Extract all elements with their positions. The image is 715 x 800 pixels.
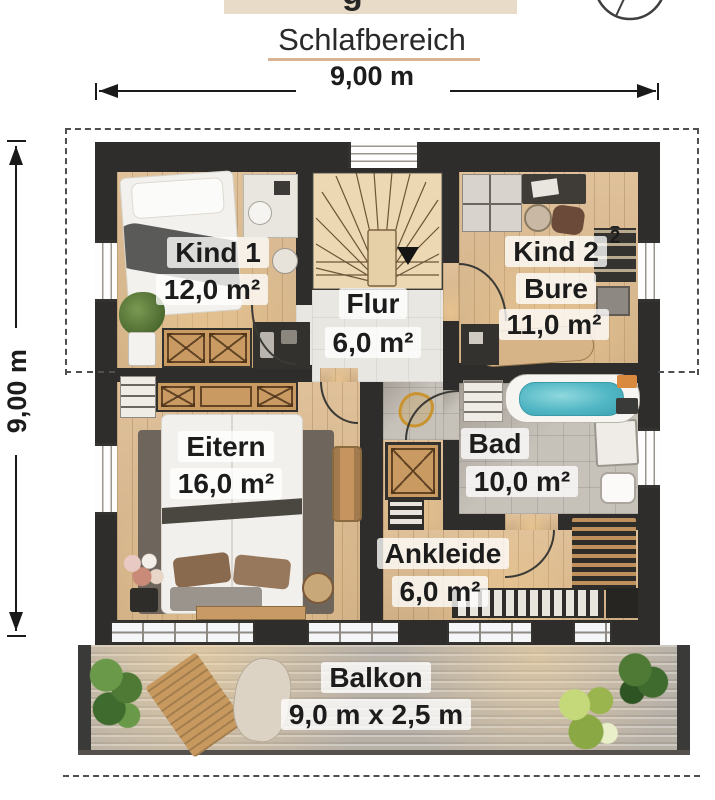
bad-label: Bad bbox=[417, 428, 573, 459]
eltern-sideboard-xpanel-2 bbox=[257, 386, 293, 407]
eltern-bed-pillow-2 bbox=[233, 554, 292, 590]
window-left-eltern bbox=[95, 443, 117, 515]
window-right-bad bbox=[638, 428, 660, 488]
left-dimension-tick-top bbox=[7, 140, 26, 142]
top-dimension-arrow-right bbox=[637, 84, 656, 98]
top-dimension-tick-left bbox=[95, 83, 97, 100]
eltern-stool bbox=[302, 572, 334, 604]
left-dimension-tick-bottom bbox=[7, 635, 26, 637]
roof-outline-stub-left bbox=[65, 371, 115, 373]
window-sill-right-2 bbox=[660, 430, 667, 486]
bad-towel-shelf bbox=[463, 380, 503, 422]
ankleide-dark-box bbox=[606, 588, 638, 618]
bad-area: 10,0 m² bbox=[466, 466, 579, 497]
top-dimension-arrow-left bbox=[99, 84, 118, 98]
balcony-door-glazing-3 bbox=[447, 621, 533, 644]
bad-mat bbox=[616, 398, 638, 414]
header-title-box: g bbox=[224, 0, 517, 14]
window-sill-left-2 bbox=[88, 445, 95, 513]
balkon-size: 9,0 m x 2,5 m bbox=[281, 699, 471, 730]
balcony-door-glazing-1 bbox=[110, 621, 255, 644]
bad-shower-tray bbox=[594, 419, 639, 467]
ankleide-door-opening bbox=[505, 514, 558, 530]
eltern-label: Eitern bbox=[148, 431, 304, 462]
eltern-bed-pillow-1 bbox=[172, 552, 231, 589]
floor-plan-page: g Schlafbereich 9,00 m 9,00 m bbox=[0, 0, 715, 800]
left-dimension-arrow-bottom bbox=[9, 612, 23, 631]
left-dimension-arrow-top bbox=[9, 146, 23, 165]
roof-outline-dashed bbox=[65, 128, 699, 375]
eltern-area-label: 16,0 m² bbox=[148, 468, 304, 499]
bottom-outline-dashed bbox=[63, 775, 700, 777]
balkon-plant-left bbox=[86, 650, 144, 734]
ankleide-label: Ankleide bbox=[363, 538, 523, 569]
eltern-plant-pot bbox=[130, 588, 158, 612]
ankleide-name: Ankleide bbox=[377, 538, 510, 569]
left-dimension-label: 9,00 m bbox=[3, 333, 31, 449]
eltern-name: Eitern bbox=[178, 431, 273, 462]
bathtub-water bbox=[519, 382, 624, 416]
top-dimension-line-right bbox=[450, 90, 656, 92]
eltern-reading-chair bbox=[332, 446, 362, 522]
eltern-sideboard-xpanel-1 bbox=[161, 386, 195, 407]
balkon-size-label: 9,0 m x 2,5 m bbox=[276, 699, 476, 730]
bad-area-label: 10,0 m² bbox=[444, 466, 600, 497]
balkon-label: Balkon bbox=[296, 662, 456, 693]
left-dimension-line-top bbox=[15, 146, 17, 328]
eltern-sideboard-panel bbox=[200, 386, 252, 407]
roof-outline-stub-right bbox=[658, 371, 695, 373]
top-dimension-line-left bbox=[99, 90, 296, 92]
balcony-door-glazing-2 bbox=[307, 621, 400, 644]
ankleide-area-label: 6,0 m² bbox=[362, 576, 518, 607]
bad-towel-orange bbox=[617, 375, 637, 388]
top-dimension-tick-right bbox=[657, 83, 659, 100]
eltern-bench bbox=[196, 606, 306, 620]
left-dimension-line-bottom bbox=[15, 455, 17, 631]
eltern-shelf bbox=[120, 376, 156, 418]
top-dimension-label: 9,00 m bbox=[292, 62, 452, 90]
balkon-plant-right-dark bbox=[612, 645, 670, 707]
eltern-sideboard bbox=[156, 381, 298, 412]
ankleide-slat-wardrobe bbox=[572, 518, 636, 590]
vestibule-ladder-shelf bbox=[388, 500, 424, 530]
header-partial-title: g bbox=[342, 0, 363, 13]
eltern-area: 16,0 m² bbox=[170, 468, 283, 499]
balkon-name: Balkon bbox=[321, 662, 430, 693]
page-title: Schlafbereich bbox=[212, 22, 532, 58]
eltern-plant bbox=[118, 548, 166, 592]
bad-toilet bbox=[600, 472, 636, 504]
ankleide-area: 6,0 m² bbox=[392, 576, 489, 607]
compass-icon bbox=[584, 0, 676, 26]
bad-name: Bad bbox=[461, 428, 530, 459]
balcony-door-glazing-4 bbox=[573, 621, 612, 644]
balkon-side-wall-right bbox=[677, 645, 690, 755]
